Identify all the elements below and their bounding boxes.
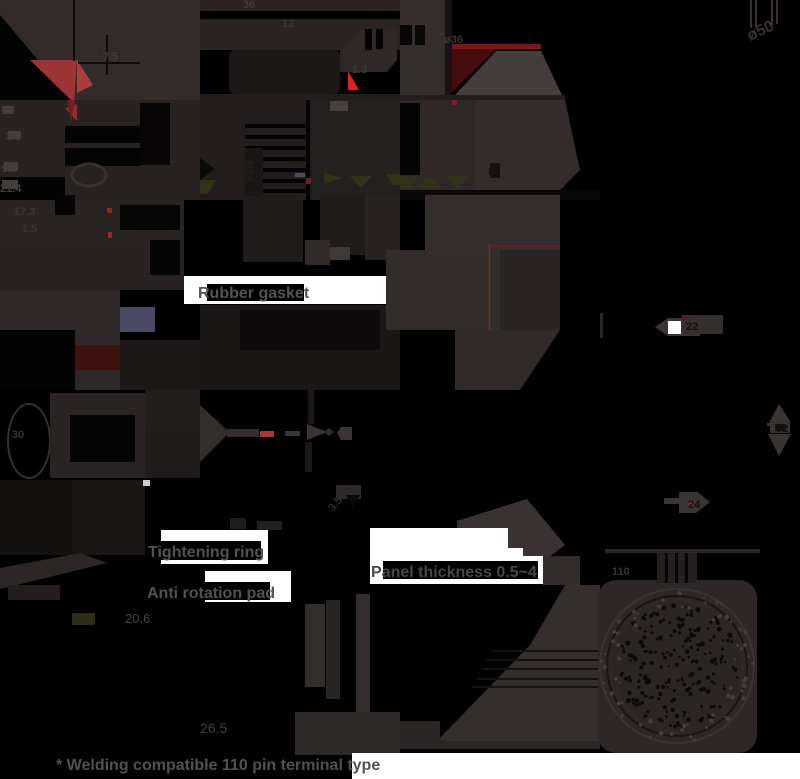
svg-text:17.3: 17.3 bbox=[14, 206, 35, 218]
svg-text:30: 30 bbox=[12, 429, 24, 441]
svg-text:22: 22 bbox=[686, 321, 698, 333]
svg-text:21.4: 21.4 bbox=[0, 183, 22, 195]
svg-text:M24: M24 bbox=[243, 160, 255, 182]
svg-text:ø36: ø36 bbox=[444, 34, 463, 46]
svg-text:8: 8 bbox=[488, 166, 494, 178]
svg-text:24: 24 bbox=[688, 499, 701, 511]
svg-text:36: 36 bbox=[243, 0, 255, 11]
svg-text:30: 30 bbox=[331, 101, 343, 113]
svg-text:8: 8 bbox=[2, 105, 8, 117]
svg-text:32: 32 bbox=[776, 423, 788, 435]
svg-text:1.5: 1.5 bbox=[22, 223, 37, 235]
svg-text:1.3: 1.3 bbox=[352, 64, 367, 76]
svg-text:9.5: 9.5 bbox=[2, 163, 17, 175]
svg-text:12: 12 bbox=[282, 18, 294, 30]
svg-text:7.5: 7.5 bbox=[103, 51, 118, 63]
svg-text:110: 110 bbox=[612, 566, 630, 578]
svg-text:3.5: 3.5 bbox=[6, 131, 21, 143]
